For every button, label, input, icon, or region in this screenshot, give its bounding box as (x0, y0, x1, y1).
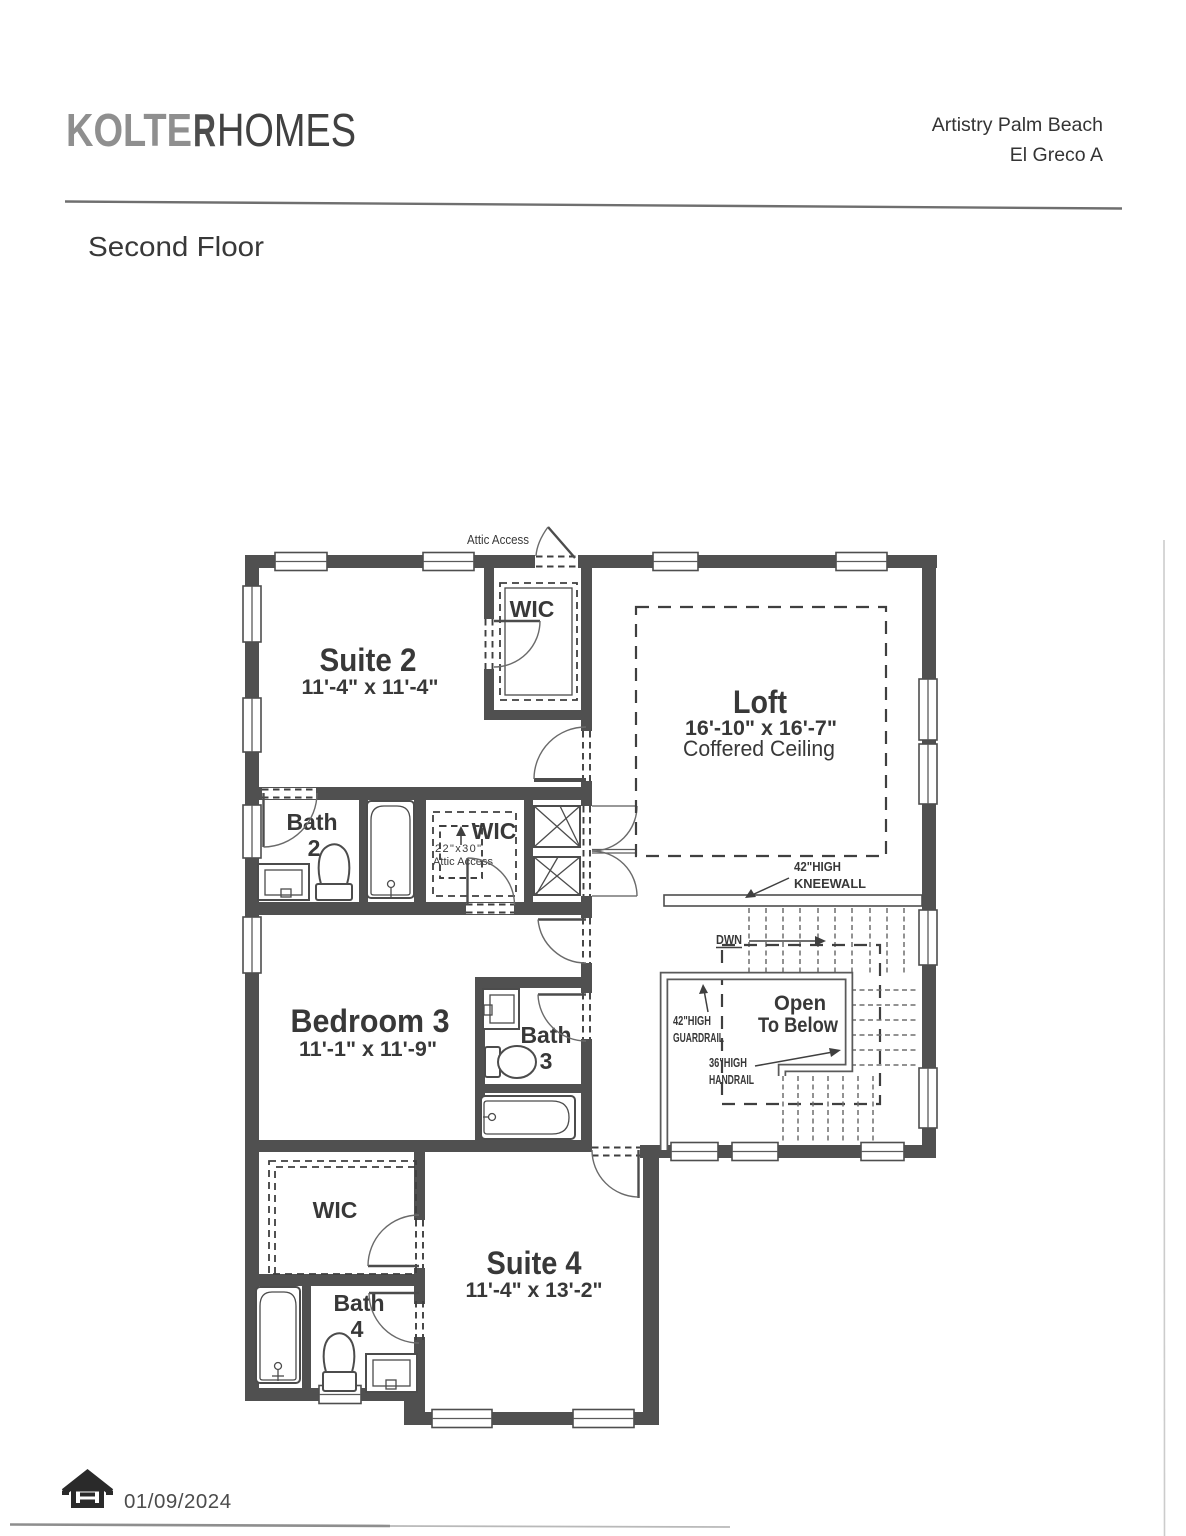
svg-text:Attic Access: Attic Access (433, 856, 494, 868)
svg-text:WIC: WIC (313, 1197, 358, 1223)
svg-text:Suite 4: Suite 4 (487, 1245, 582, 1281)
svg-text:Attic Access: Attic Access (467, 533, 529, 547)
svg-text:R: R (193, 104, 216, 156)
svg-text:KOLTE: KOLTE (66, 104, 192, 156)
svg-text:Loft: Loft (733, 684, 787, 720)
svg-text:11'-1" x 11'-9": 11'-1" x 11'-9" (299, 1038, 437, 1061)
svg-text:To Below: To Below (758, 1014, 839, 1037)
svg-text:Second Floor: Second Floor (88, 231, 264, 262)
svg-text:11'-4" x 13'-2": 11'-4" x 13'-2" (466, 1279, 603, 1302)
svg-text:4: 4 (351, 1316, 364, 1342)
svg-text:3: 3 (540, 1048, 553, 1074)
svg-text:42"HIGH: 42"HIGH (794, 860, 841, 874)
svg-text:22"x30": 22"x30" (435, 843, 481, 855)
svg-text:Artistry Palm Beach: Artistry Palm Beach (932, 114, 1103, 136)
svg-text:HANDRAIL: HANDRAIL (709, 1073, 754, 1087)
svg-text:11'-4" x 11'-4": 11'-4" x 11'-4" (302, 676, 439, 699)
svg-text:Bath: Bath (286, 809, 337, 835)
svg-text:Open: Open (774, 992, 826, 1015)
svg-text:WIC: WIC (472, 818, 517, 844)
svg-text:Bedroom 3: Bedroom 3 (291, 1003, 450, 1039)
svg-text:36"HIGH: 36"HIGH (709, 1056, 747, 1070)
svg-text:GUARDRAIL: GUARDRAIL (673, 1031, 724, 1045)
svg-text:HOMES: HOMES (217, 104, 356, 156)
svg-text:KNEEWALL: KNEEWALL (794, 877, 866, 891)
svg-text:42"HIGH: 42"HIGH (673, 1014, 711, 1028)
svg-text:01/09/2024: 01/09/2024 (124, 1490, 232, 1513)
svg-text:2: 2 (308, 835, 321, 861)
svg-text:Suite 2: Suite 2 (320, 642, 417, 678)
svg-text:El Greco A: El Greco A (1010, 144, 1103, 166)
svg-text:Coffered Ceiling: Coffered Ceiling (683, 736, 835, 761)
svg-text:WIC: WIC (510, 596, 555, 622)
